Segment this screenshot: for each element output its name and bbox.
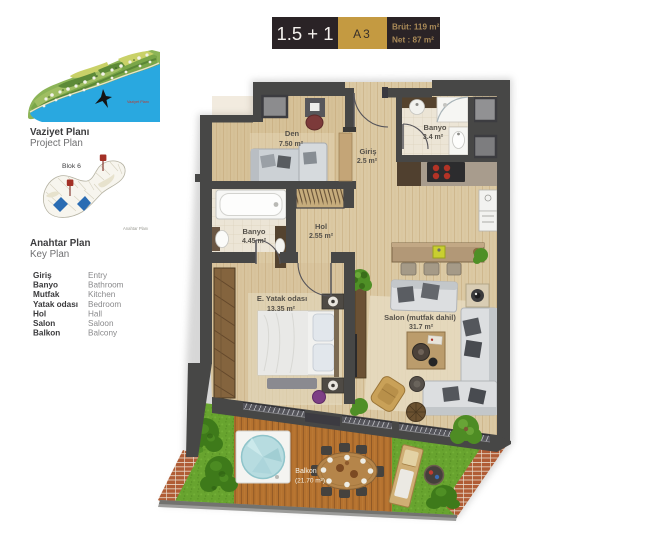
svg-text:Key Plan: Key Plan: [30, 249, 69, 260]
svg-text:Hall: Hall: [88, 309, 102, 318]
svg-text:E. Yatak odası: E. Yatak odası: [257, 294, 307, 303]
svg-text:Yatak odası: Yatak odası: [33, 300, 78, 309]
svg-text:Balcony: Balcony: [88, 329, 118, 338]
svg-text:Anahtar Planı: Anahtar Planı: [123, 226, 148, 231]
svg-text:Banyo: Banyo: [33, 281, 58, 290]
svg-text:Anahtar Plan: Anahtar Plan: [30, 238, 90, 249]
svg-text:Giriş: Giriş: [359, 147, 376, 156]
svg-text:7.50 m²: 7.50 m²: [279, 141, 304, 148]
svg-text:Net : 87 m²: Net : 87 m²: [392, 36, 434, 45]
svg-text:A3: A3: [353, 27, 372, 41]
svg-text:Hol: Hol: [315, 222, 327, 231]
svg-text:Vaziyet Planı: Vaziyet Planı: [127, 100, 149, 104]
svg-text:Salon (mutfak dahil): Salon (mutfak dahil): [384, 313, 456, 322]
svg-text:13.35 m²: 13.35 m²: [267, 306, 296, 313]
svg-text:Balkon: Balkon: [33, 329, 60, 338]
svg-text:Salon: Salon: [33, 319, 55, 328]
svg-text:Banyo: Banyo: [243, 227, 266, 236]
svg-text:Vaziyet Planı: Vaziyet Planı: [30, 127, 90, 138]
svg-text:Saloon: Saloon: [88, 319, 114, 328]
svg-text:Hol: Hol: [33, 309, 46, 318]
svg-text:(21.70 m²): (21.70 m²): [295, 478, 325, 485]
svg-text:Banyo: Banyo: [424, 123, 447, 132]
svg-text:Kitchen: Kitchen: [88, 290, 116, 299]
svg-text:Bedroom: Bedroom: [88, 300, 121, 309]
svg-text:Balkon: Balkon: [295, 468, 317, 475]
svg-text:Blok 6: Blok 6: [62, 163, 81, 170]
svg-text:Den: Den: [285, 129, 300, 138]
svg-text:Giriş: Giriş: [33, 271, 52, 280]
svg-text:Mutfak: Mutfak: [33, 290, 60, 299]
svg-text:Brüt: 119 m²: Brüt: 119 m²: [392, 23, 440, 32]
svg-text:Entry: Entry: [88, 271, 108, 280]
svg-text:2.5 m²: 2.5 m²: [357, 158, 378, 165]
svg-text:4.45 m²: 4.45 m²: [242, 238, 267, 245]
svg-text:1.5 + 1: 1.5 + 1: [276, 23, 333, 44]
svg-text:2.55 m²: 2.55 m²: [309, 233, 334, 240]
svg-text:3.4 m²: 3.4 m²: [423, 134, 444, 141]
svg-text:Bathroom: Bathroom: [88, 281, 124, 290]
svg-text:Project Plan: Project Plan: [30, 138, 83, 149]
svg-text:31.7 m²: 31.7 m²: [409, 324, 434, 331]
